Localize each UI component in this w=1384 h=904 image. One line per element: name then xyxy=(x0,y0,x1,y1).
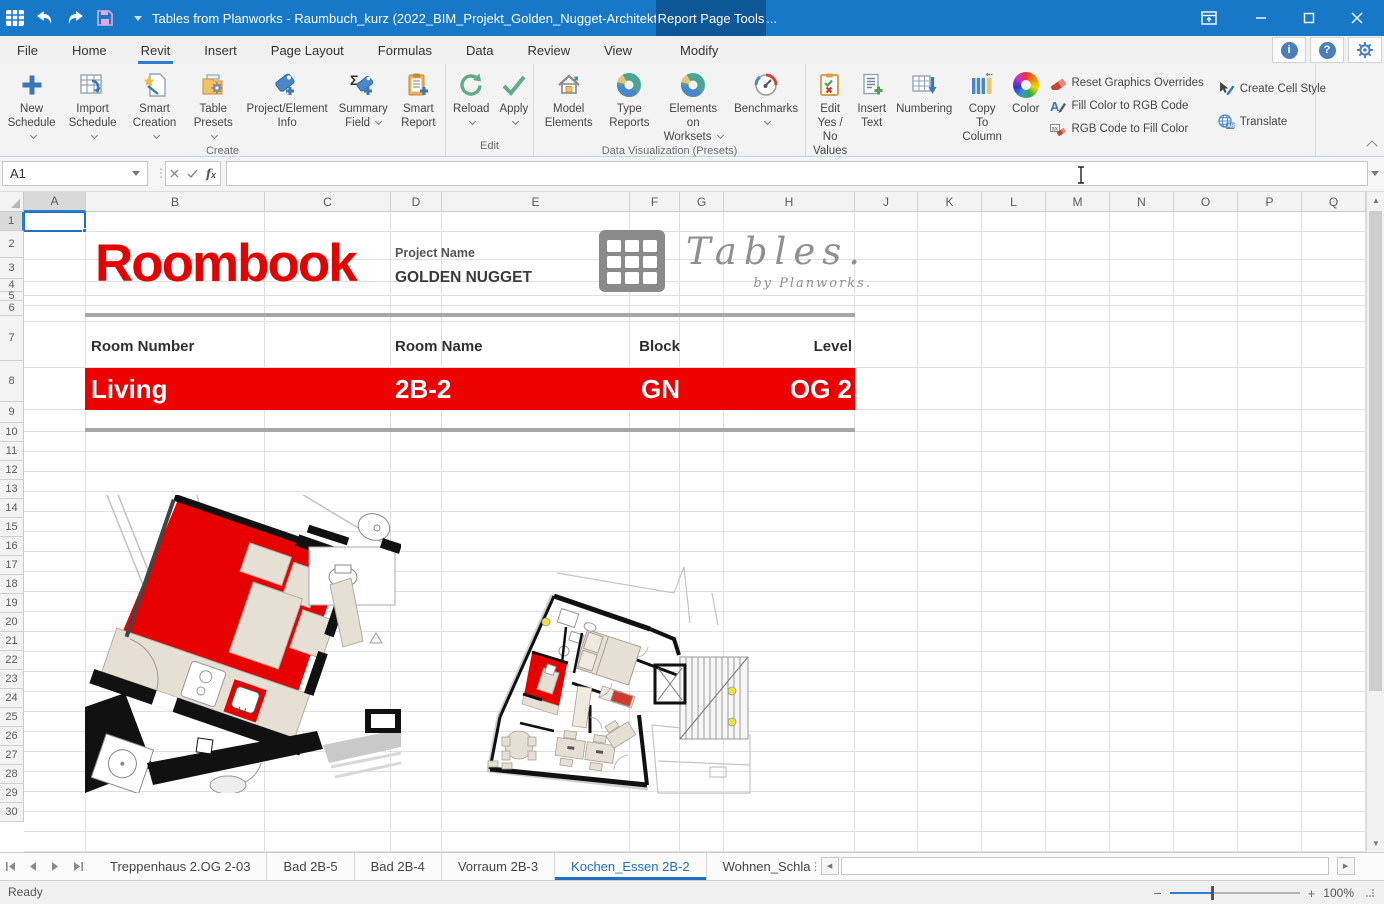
column-header[interactable]: G xyxy=(680,192,724,212)
row-header[interactable]: 15 xyxy=(0,518,24,537)
edit-yes-no-values-button[interactable]: Edit Yes / No Values xyxy=(808,67,852,158)
rgb-to-fill-color-button[interactable]: ax RGB Code to Fill Color xyxy=(1050,119,1203,138)
column-header[interactable]: F xyxy=(630,192,680,212)
sheet-tab-bar: Treppenhaus 2.OG 2-03 Bad 2B-5 Bad 2B-4 … xyxy=(0,852,1384,880)
value-block: GN xyxy=(630,374,680,405)
row-header[interactable]: 29 xyxy=(0,784,24,803)
sheet-tab-kochen-essen[interactable]: Kochen_Essen 2B-2 xyxy=(555,853,707,880)
floor-plan-detail-image xyxy=(85,495,401,793)
save-icon[interactable] xyxy=(90,0,120,36)
header-room-number: Room Number xyxy=(85,338,395,355)
column-headers: ABCDEFGHJKLMNOPQ xyxy=(24,192,1366,212)
select-all-corner[interactable] xyxy=(0,192,24,212)
zoom-slider-thumb[interactable] xyxy=(1211,886,1214,900)
column-header[interactable]: J xyxy=(855,192,918,212)
row-headers: 1234567891011121314151617181920212223242… xyxy=(0,212,24,822)
tab-scroll-splitter[interactable]: ⋮ xyxy=(811,853,821,880)
color-wheel-icon xyxy=(1013,70,1039,100)
hscroll-left-icon[interactable]: ◀ xyxy=(821,857,839,875)
confirm-entry-icon[interactable] xyxy=(187,169,198,178)
column-header[interactable]: Q xyxy=(1302,192,1366,212)
tab-revit[interactable]: Revit xyxy=(124,36,188,64)
plus-icon xyxy=(19,70,45,100)
row-header[interactable]: 10 xyxy=(0,423,24,442)
row-header[interactable]: 13 xyxy=(0,480,24,499)
gauge-icon xyxy=(753,70,779,100)
help-icon: ? xyxy=(1319,42,1336,59)
minimize-button[interactable] xyxy=(1238,0,1284,36)
reload-icon xyxy=(458,70,484,100)
tab-data[interactable]: Data xyxy=(449,36,510,64)
grid-line xyxy=(24,811,1366,812)
selected-cell-outline[interactable] xyxy=(24,212,86,232)
undo-icon[interactable] xyxy=(30,0,60,36)
row-header[interactable]: 22 xyxy=(0,651,24,670)
room-table-header-row: Room Number Room Name Block Level xyxy=(85,338,855,355)
chevron-down-icon xyxy=(512,118,519,125)
floor-plan-overview-image xyxy=(462,565,758,801)
row-header[interactable]: 7 xyxy=(0,316,24,361)
row-header[interactable]: 3 xyxy=(0,258,24,279)
row-header[interactable]: 1 xyxy=(0,212,24,231)
ribbon-group-data-visualization: Model Elements Type Reports Elements on … xyxy=(534,64,806,156)
zoom-out-icon[interactable]: − xyxy=(1154,885,1162,901)
column-header[interactable]: A xyxy=(24,192,86,212)
tab-insert[interactable]: Insert xyxy=(187,36,254,64)
sheet-tab-bad-2b4[interactable]: Bad 2B-4 xyxy=(355,853,442,880)
code-eraser-icon: ax xyxy=(1050,122,1066,136)
table-import-icon xyxy=(79,70,106,100)
misc-small-buttons-left: Reset Graphics Overrides A Fill Color to… xyxy=(1044,67,1211,138)
first-sheet-icon[interactable] xyxy=(0,853,22,880)
column-header[interactable]: N xyxy=(1110,192,1174,212)
column-header[interactable]: B xyxy=(86,192,265,212)
report-title: Roombook xyxy=(95,236,356,292)
reload-button[interactable]: Reload xyxy=(448,67,494,130)
fill-color-to-rgb-button[interactable]: A Fill Color to RGB Code xyxy=(1050,96,1203,115)
apply-button[interactable]: Apply xyxy=(494,67,533,130)
row-header[interactable]: 24 xyxy=(0,689,24,708)
row-header[interactable]: 16 xyxy=(0,537,24,556)
reset-graphics-overrides-button[interactable]: Reset Graphics Overrides xyxy=(1050,73,1203,92)
column-header[interactable]: K xyxy=(918,192,982,212)
group-label-data-visualization: Data Visualization (Presets) xyxy=(534,144,805,159)
namebox-caret-icon[interactable] xyxy=(132,171,140,176)
expand-formula-bar-icon[interactable] xyxy=(1371,171,1379,176)
tab-file[interactable]: File xyxy=(0,36,55,64)
tab-page-layout[interactable]: Page Layout xyxy=(254,36,361,64)
create-cell-style-button[interactable]: Create Cell Style xyxy=(1218,79,1326,98)
elements-on-worksets-button[interactable]: Elements on Worksets xyxy=(657,67,729,144)
grid-line xyxy=(981,212,982,852)
info-icon: i xyxy=(1281,42,1298,59)
translate-button[interactable]: AB Translate xyxy=(1218,112,1326,131)
row-header[interactable]: 28 xyxy=(0,765,24,784)
tab-view[interactable]: View xyxy=(587,36,649,64)
brand-byline: by Planworks. xyxy=(672,276,872,291)
smart-report-button[interactable]: Smart Report xyxy=(394,67,443,130)
color-button[interactable]: Color xyxy=(1007,67,1044,116)
chevron-down-icon xyxy=(717,132,724,139)
status-text: Ready xyxy=(8,885,43,899)
chevron-down-icon xyxy=(211,132,218,139)
room-table-value-row: Living 2B-2 GN OG 2 xyxy=(85,368,855,410)
ribbon-spacer xyxy=(1316,64,1384,156)
table-number-icon xyxy=(911,70,938,100)
row-header[interactable]: 21 xyxy=(0,632,24,651)
grid-line xyxy=(1173,212,1174,852)
group-label-edit: Edit xyxy=(446,139,533,156)
fill-handle[interactable] xyxy=(82,228,87,233)
collapse-ribbon-icon[interactable] xyxy=(1366,140,1377,151)
row-header[interactable]: 17 xyxy=(0,556,24,575)
insert-text-button[interactable]: Insert Text xyxy=(852,67,891,130)
header-room-name: Room Name xyxy=(395,338,630,355)
row-header[interactable]: 11 xyxy=(0,442,24,461)
close-button[interactable] xyxy=(1334,0,1380,36)
divider-rule-bottom xyxy=(85,428,855,432)
gear-icon xyxy=(1356,41,1374,59)
grid-line xyxy=(24,451,1366,452)
ribbon: New Schedule Import Schedule Smart Creat… xyxy=(0,64,1384,157)
grid-line xyxy=(1109,212,1110,852)
row-header[interactable]: 2 xyxy=(0,231,24,258)
cursor-pen-icon xyxy=(1218,81,1235,96)
grid-line xyxy=(917,212,918,852)
donut-chart-icon xyxy=(616,70,642,100)
spreadsheet-grid: ABCDEFGHJKLMNOPQ 12345678910111213141516… xyxy=(0,192,1384,852)
header-block: Block xyxy=(630,338,680,355)
row-header[interactable]: 12 xyxy=(0,461,24,480)
ribbon-group-create: New Schedule Import Schedule Smart Creat… xyxy=(0,64,446,156)
formula-bar: A1 ⋮ fx xyxy=(0,158,1384,192)
chevron-down-icon xyxy=(91,132,98,139)
grid-line xyxy=(24,305,1366,306)
numbering-button[interactable]: Numbering xyxy=(891,67,957,116)
column-header[interactable]: C xyxy=(265,192,391,212)
row-header[interactable]: 9 xyxy=(0,402,24,423)
tab-home[interactable]: Home xyxy=(55,36,124,64)
smart-creation-button[interactable]: Smart Creation xyxy=(124,67,185,144)
grid-line xyxy=(24,831,1366,832)
brand-name: Tables. xyxy=(686,230,867,273)
tag-plus-icon xyxy=(273,70,301,100)
last-sheet-icon[interactable] xyxy=(66,853,88,880)
ribbon-group-miscellaneous: Edit Yes / No Values Insert Text Numberi… xyxy=(806,64,1316,156)
tab-modify[interactable]: Modify xyxy=(663,36,735,64)
magic-document-icon xyxy=(142,70,168,100)
row-header[interactable]: 27 xyxy=(0,746,24,765)
project-element-info-button[interactable]: Project/Element Info xyxy=(242,67,333,130)
grid-line xyxy=(854,212,855,852)
divider-rule-top xyxy=(85,313,855,317)
font-pen-icon: A xyxy=(1050,99,1066,113)
ribbon-display-icon[interactable] xyxy=(1186,0,1232,36)
project-name-value: GOLDEN NUGGET xyxy=(395,269,532,287)
value-room-name: 2B-2 xyxy=(395,374,630,405)
insert-function-icon[interactable]: fx xyxy=(206,167,216,181)
tab-formulas[interactable]: Formulas xyxy=(361,36,449,64)
cell-name-box[interactable]: A1 xyxy=(2,161,148,186)
svg-text:AB: AB xyxy=(1227,123,1235,129)
row-header[interactable]: 26 xyxy=(0,727,24,746)
tab-review[interactable]: Review xyxy=(510,36,587,64)
grid-line xyxy=(1301,212,1302,852)
redo-icon[interactable] xyxy=(60,0,90,36)
vertical-scrollbar[interactable]: ▲ ▼ xyxy=(1366,192,1384,852)
clipboard-plus-icon xyxy=(405,70,431,100)
grid-line xyxy=(441,212,442,852)
sheet-tab-treppenhaus[interactable]: Treppenhaus 2.OG 2-03 xyxy=(94,853,267,880)
chevron-down-icon xyxy=(469,118,476,125)
settings-button[interactable] xyxy=(1348,37,1382,63)
row-header[interactable]: 6 xyxy=(0,301,24,316)
prev-sheet-icon[interactable] xyxy=(22,853,44,880)
header-level: Level xyxy=(680,338,855,355)
title-bar: Tables from Planworks - Raumbuch_kurz (2… xyxy=(0,0,1384,36)
horizontal-scrollbar-track[interactable] xyxy=(841,857,1329,875)
chevron-down-icon xyxy=(375,118,382,125)
row-header[interactable]: 19 xyxy=(0,594,24,613)
formula-input[interactable] xyxy=(226,161,1368,186)
column-header[interactable]: M xyxy=(1046,192,1110,212)
document-plus-icon xyxy=(859,70,885,100)
resize-grip[interactable] xyxy=(1366,889,1374,897)
ribbon-group-edit: Reload Apply Edit xyxy=(446,64,534,156)
row-header[interactable]: 23 xyxy=(0,670,24,689)
chevron-down-icon xyxy=(30,132,37,139)
grid-line xyxy=(24,491,1366,492)
column-header[interactable]: L xyxy=(982,192,1046,212)
chevron-down-icon xyxy=(764,118,771,125)
row-header[interactable]: 20 xyxy=(0,613,24,632)
application-window: Tables from Planworks - Raumbuch_kurz (2… xyxy=(0,0,1384,904)
model-elements-button[interactable]: Model Elements xyxy=(536,67,601,130)
grid-line xyxy=(1045,212,1046,852)
donut-chart-icon xyxy=(680,70,706,100)
next-sheet-icon[interactable] xyxy=(44,853,66,880)
table-presets-button[interactable]: Table Presets xyxy=(185,67,242,144)
row-header[interactable]: 8 xyxy=(0,361,24,402)
info-button[interactable]: i xyxy=(1272,37,1306,63)
sigma-tag-icon: Σ xyxy=(349,70,377,100)
quick-access-caret-icon[interactable] xyxy=(134,16,142,21)
columns-icon xyxy=(969,70,995,100)
grid-line xyxy=(1237,212,1238,852)
row-header[interactable]: 18 xyxy=(0,575,24,594)
zoom-slider[interactable] xyxy=(1170,892,1300,894)
grid-line xyxy=(24,321,1366,322)
ribbon-tab-row: File Home Revit Insert Page Layout Formu… xyxy=(0,36,1384,64)
row-header[interactable]: 25 xyxy=(0,708,24,727)
row-header[interactable]: 30 xyxy=(0,803,24,822)
zoom-in-icon[interactable]: + xyxy=(1308,886,1316,901)
svg-text:ax: ax xyxy=(1052,126,1058,132)
chevron-down-icon xyxy=(152,132,159,139)
cancel-entry-icon[interactable] xyxy=(170,169,179,178)
type-reports-button[interactable]: Type Reports xyxy=(601,67,657,130)
sheet-tab-bad-2b5[interactable]: Bad 2B-5 xyxy=(267,853,354,880)
folder-gear-icon xyxy=(200,70,227,100)
sheet-tab-vorraum[interactable]: Vorraum 2B-3 xyxy=(442,853,555,880)
column-header[interactable]: H xyxy=(724,192,855,212)
hscroll-right-icon[interactable]: ▶ xyxy=(1337,857,1355,875)
benchmarks-button[interactable]: Benchmarks xyxy=(729,67,803,130)
eraser-icon xyxy=(1050,76,1066,90)
grid-line xyxy=(24,295,1366,296)
house-icon xyxy=(556,70,582,100)
import-schedule-button[interactable]: Import Schedule xyxy=(61,67,124,144)
column-header[interactable]: E xyxy=(442,192,630,212)
vertical-scrollbar-thumb[interactable] xyxy=(1369,211,1382,691)
value-level: OG 2 xyxy=(680,374,855,405)
column-header[interactable]: P xyxy=(1238,192,1302,212)
clipboard-check-x-icon xyxy=(817,70,843,100)
check-icon xyxy=(501,70,527,100)
project-name-label: Project Name xyxy=(395,246,475,260)
copy-to-column-button[interactable]: Copy To Column xyxy=(957,67,1007,144)
zoom-control: − + 100% xyxy=(1154,881,1374,904)
status-bar: Ready − + 100% xyxy=(0,880,1384,904)
group-label-create: Create xyxy=(0,144,445,159)
row-header[interactable]: 14 xyxy=(0,499,24,518)
grid-line xyxy=(24,471,1366,472)
svg-text:A: A xyxy=(1050,99,1060,113)
tables-logo-icon xyxy=(597,228,667,294)
help-button[interactable]: ? xyxy=(1310,37,1344,63)
cell-area[interactable]: Roombook Project Name GOLDEN NUGGET Tabl… xyxy=(24,212,1366,852)
scroll-down-icon[interactable]: ▼ xyxy=(1367,835,1384,852)
mouse-cursor xyxy=(1076,166,1086,184)
scroll-up-icon[interactable]: ▲ xyxy=(1367,192,1384,209)
maximize-button[interactable] xyxy=(1286,0,1332,36)
report-page-tools-tab[interactable]: Report Page Tools xyxy=(656,0,766,36)
column-header[interactable]: O xyxy=(1174,192,1238,212)
sheet-tab-wohnen[interactable]: Wohnen_Schla xyxy=(707,853,811,880)
new-schedule-button[interactable]: New Schedule xyxy=(2,67,61,144)
zoom-level: 100% xyxy=(1323,886,1354,900)
column-header[interactable]: D xyxy=(391,192,442,212)
app-icon xyxy=(0,0,30,36)
value-room-number: Living xyxy=(85,374,395,405)
globe-icon: AB xyxy=(1218,114,1235,130)
summary-field-button[interactable]: Σ Summary Field xyxy=(333,67,394,130)
